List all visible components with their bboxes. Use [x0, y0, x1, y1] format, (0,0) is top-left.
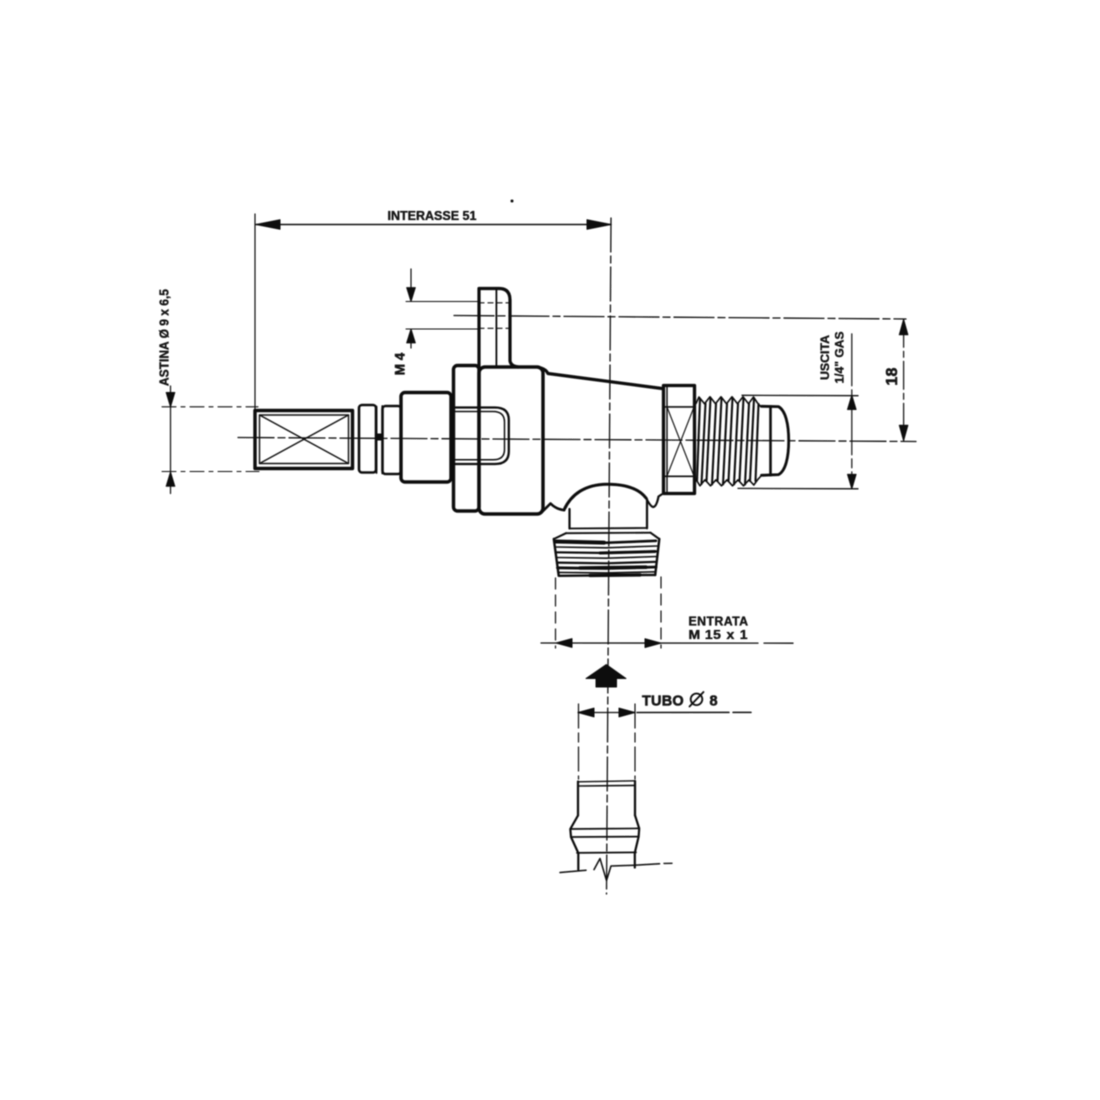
svg-text:M 4: M 4: [393, 352, 408, 375]
svg-text:ASTINA Ø 9 x 6,5: ASTINA Ø 9 x 6,5: [158, 289, 172, 386]
svg-text:18: 18: [884, 367, 901, 385]
svg-text:ENTRATA: ENTRATA: [689, 615, 749, 629]
svg-text:TUBO: TUBO: [642, 694, 684, 710]
svg-text:8: 8: [710, 694, 718, 710]
svg-text:INTERASSE 51: INTERASSE 51: [388, 209, 477, 223]
svg-text:M 15 x 1: M 15 x 1: [689, 628, 749, 642]
svg-text:1/4" GAS: 1/4" GAS: [833, 332, 847, 384]
svg-text:USCITA: USCITA: [818, 335, 832, 380]
